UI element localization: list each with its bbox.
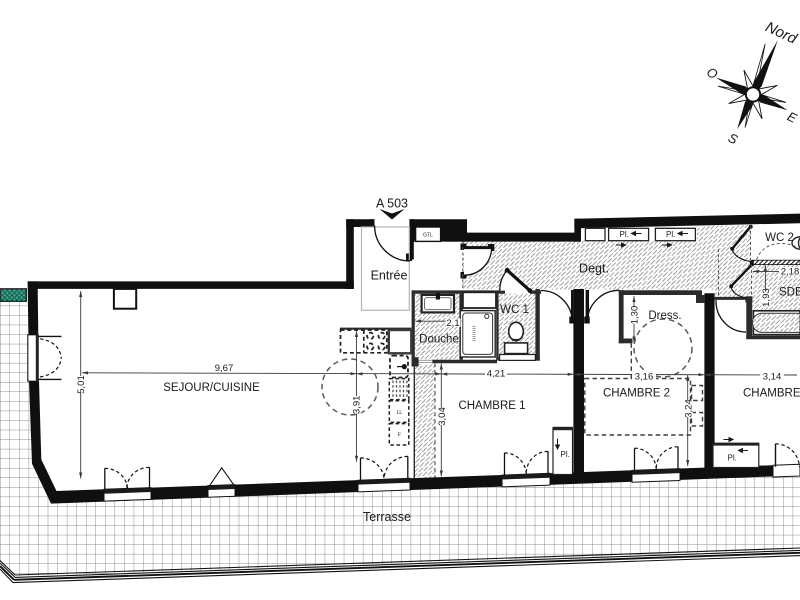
- svg-text:3,04: 3,04: [437, 407, 448, 426]
- svg-text:4,21: 4,21: [487, 369, 506, 380]
- svg-text:Terrasse: Terrasse: [363, 510, 411, 524]
- svg-text:CHAMBRE 1: CHAMBRE 1: [458, 400, 525, 412]
- svg-text:A 503: A 503: [376, 197, 408, 211]
- svg-text:CHAMBRE 2: CHAMBRE 2: [603, 388, 670, 400]
- svg-text:SDB.: SDB.: [779, 287, 800, 299]
- svg-text:3,91: 3,91: [352, 396, 363, 415]
- svg-text:3,14: 3,14: [763, 372, 782, 383]
- svg-text:F: F: [398, 433, 401, 439]
- svg-text:Dress.: Dress.: [648, 310, 681, 322]
- svg-text:SEJOUR/CUISINE: SEJOUR/CUISINE: [163, 382, 260, 394]
- svg-text:LL: LL: [397, 410, 403, 416]
- svg-text:5,01: 5,01: [76, 375, 87, 394]
- svg-text:Pl.: Pl.: [666, 230, 675, 239]
- svg-text:3,16: 3,16: [635, 372, 654, 383]
- svg-text:1,93: 1,93: [761, 288, 772, 307]
- svg-text:Pl.: Pl.: [620, 230, 629, 239]
- svg-text:Douche: Douche: [419, 334, 459, 346]
- svg-text:Degt.: Degt.: [579, 262, 609, 276]
- svg-text:WC 2: WC 2: [765, 232, 794, 244]
- svg-text:9,67: 9,67: [215, 363, 234, 374]
- svg-text:Entrée: Entrée: [371, 269, 408, 283]
- svg-text:2,1: 2,1: [446, 318, 459, 329]
- svg-text:3,24: 3,24: [683, 399, 694, 418]
- svg-text:CHAMBRE 3: CHAMBRE 3: [743, 388, 800, 400]
- svg-text:Pl.: Pl.: [728, 454, 737, 463]
- svg-text:2,18: 2,18: [781, 267, 800, 278]
- svg-text:1,30: 1,30: [629, 306, 640, 325]
- svg-text:GTL: GTL: [423, 233, 433, 239]
- svg-text:Pl.: Pl.: [561, 450, 570, 459]
- svg-text:WC 1: WC 1: [500, 304, 529, 316]
